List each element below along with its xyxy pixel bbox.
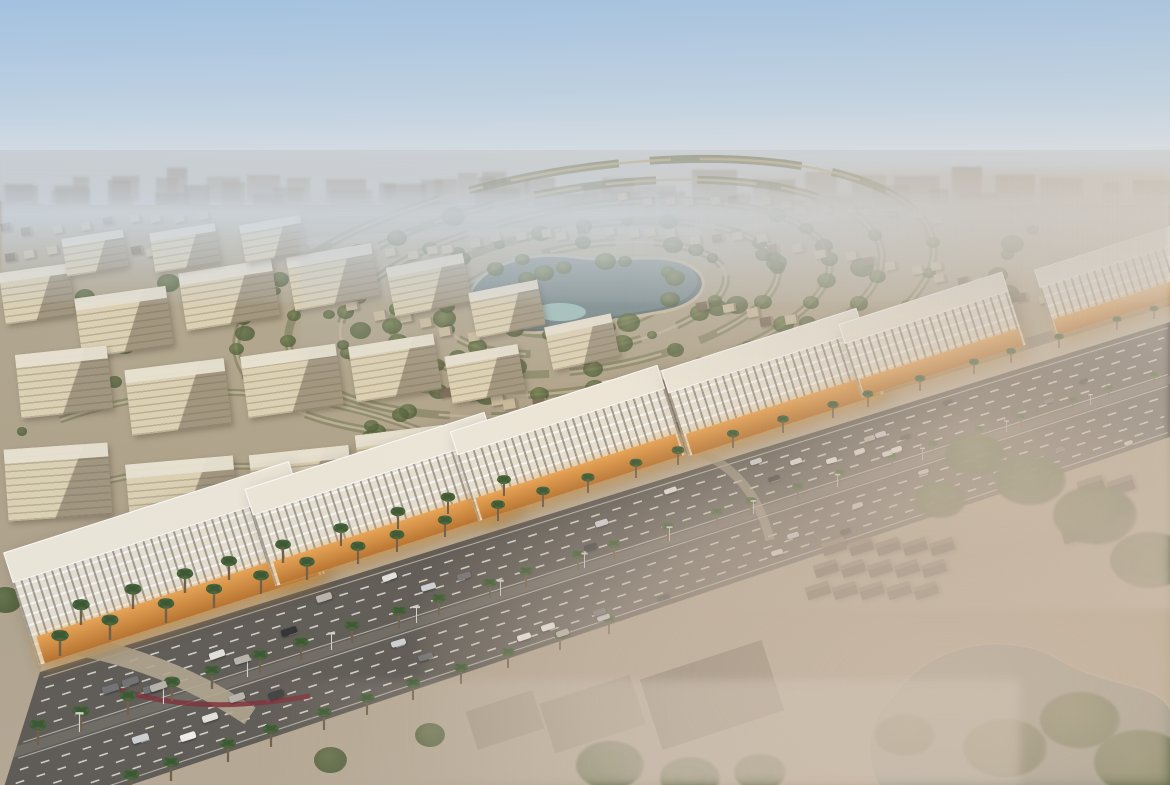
fog-patch bbox=[420, 420, 1170, 785]
fog-patch bbox=[0, 148, 1170, 303]
aerial-city-render bbox=[0, 0, 1170, 785]
fog-patch bbox=[760, 295, 1170, 560]
fog-patch bbox=[260, 680, 1020, 785]
fog-patch bbox=[300, 195, 1170, 385]
fog-overlays bbox=[0, 0, 1170, 785]
fog-patch bbox=[0, 0, 1170, 785]
fog-patch bbox=[620, 170, 1170, 610]
